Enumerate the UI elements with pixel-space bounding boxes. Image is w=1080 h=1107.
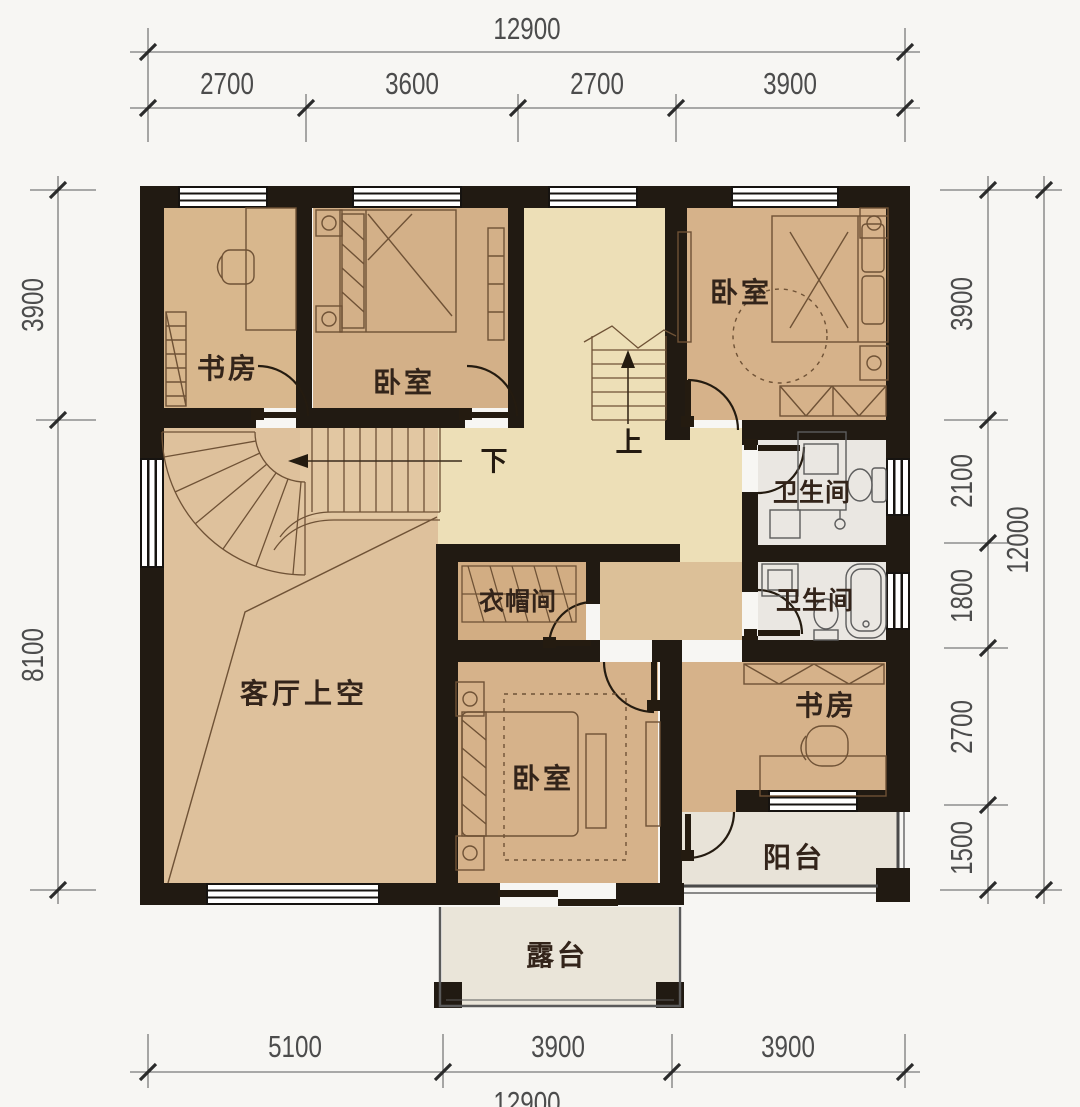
- stairs-up: [584, 326, 676, 420]
- stair-up-label: 上: [616, 421, 643, 460]
- room-label-bath-lower: 卫生间: [776, 581, 854, 617]
- dim-right-seg-3: 1800: [944, 569, 980, 623]
- furniture-bedroom-top: [316, 210, 504, 340]
- floor-plan: 书房 卧室 卧室 卫生间 卫生间 衣帽间 客厅上空 卧室 书房 阳台 露台 上 …: [0, 0, 1080, 1107]
- room-label-closet: 衣帽间: [479, 582, 557, 618]
- dim-top-total: 12900: [493, 11, 560, 47]
- room-label-terrace: 露台: [526, 934, 588, 974]
- dim-left-seg-1: 3900: [15, 278, 51, 332]
- up-arrow-icon: [621, 350, 635, 424]
- room-label-study-tl: 书房: [197, 347, 259, 387]
- dimension-lines: [30, 28, 1062, 1088]
- room-label-bath-upper: 卫生间: [773, 473, 851, 509]
- stair-down-label: 下: [481, 440, 508, 479]
- dim-bottom-total: 12900: [493, 1085, 560, 1107]
- down-arrow-icon: [288, 454, 462, 468]
- dim-right-seg-5: 1500: [944, 821, 980, 875]
- dim-bottom-seg-1: 5100: [268, 1029, 322, 1065]
- room-label-study-br: 书房: [795, 684, 857, 724]
- dimension-ticks: [50, 44, 1052, 1080]
- dim-top-seg-2: 3600: [385, 66, 439, 102]
- dim-right-seg-2: 2100: [944, 454, 980, 508]
- room-label-bedroom-top: 卧室: [373, 361, 435, 401]
- dim-top-seg-1: 2700: [200, 66, 254, 102]
- dim-bottom-seg-2: 3900: [531, 1029, 585, 1065]
- room-label-bedroom-bottom: 卧室: [512, 757, 574, 797]
- dim-bottom-seg-3: 3900: [761, 1029, 815, 1065]
- room-label-bedroom-right: 卧室: [710, 271, 772, 311]
- room-label-living-void: 客厅上空: [240, 672, 368, 712]
- dim-right-seg-1: 3900: [944, 277, 980, 331]
- dim-right-total: 12000: [1000, 506, 1036, 573]
- dim-top-seg-3: 2700: [570, 66, 624, 102]
- dim-top-seg-4: 3900: [763, 66, 817, 102]
- room-label-balcony: 阳台: [763, 836, 825, 876]
- stairs-down: [162, 428, 440, 575]
- dim-right-seg-4: 2700: [944, 700, 980, 754]
- dim-left-seg-2: 8100: [15, 628, 51, 682]
